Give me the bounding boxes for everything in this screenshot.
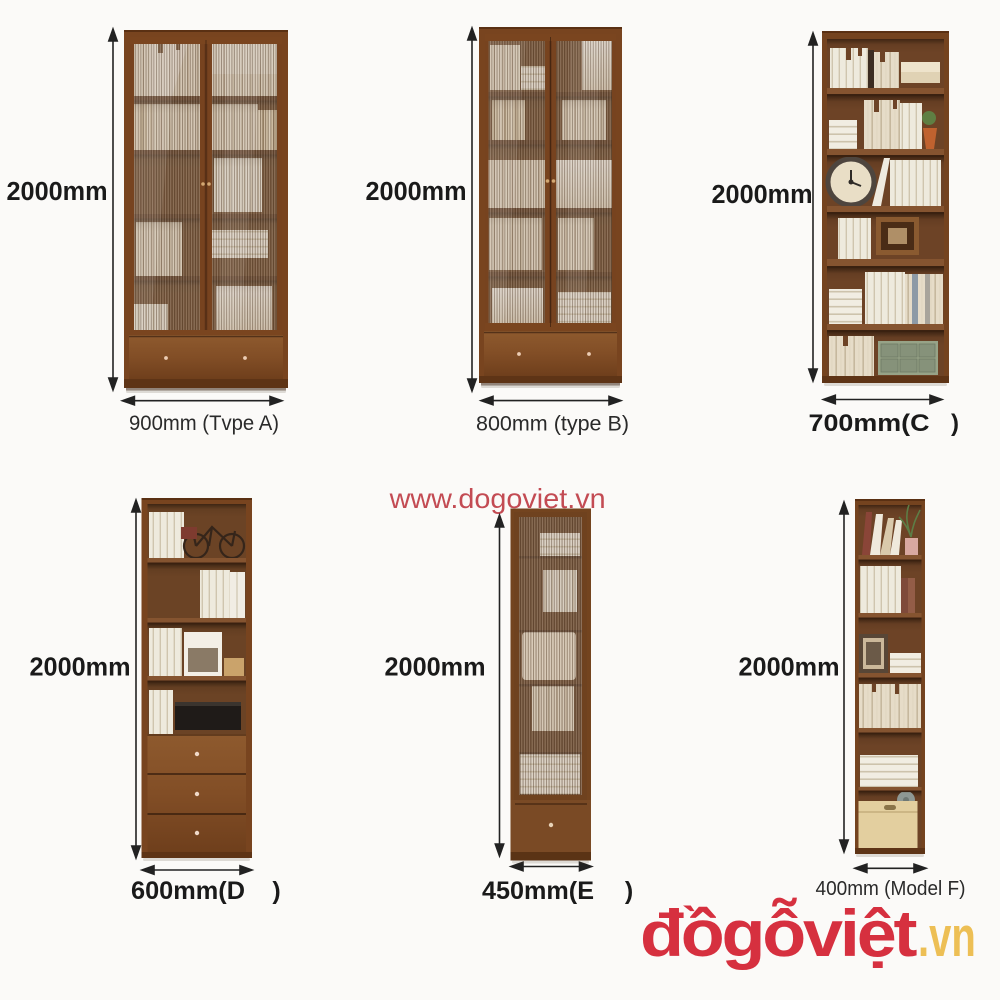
svg-text:2000mm: 2000mm — [385, 652, 486, 682]
svg-text:2000mm: 2000mm — [712, 181, 813, 209]
svg-text:): ) — [272, 877, 280, 905]
svg-text:900mm (Tvpe A): 900mm (Tvpe A) — [129, 412, 279, 435]
svg-text:2000mm: 2000mm — [30, 652, 131, 682]
svg-text:700mm(C: 700mm(C — [809, 410, 930, 437]
svg-text:450mm(E: 450mm(E — [482, 877, 594, 905]
svg-text:đồgỗviệt: đồgỗviệt — [640, 896, 917, 971]
svg-text:): ) — [625, 877, 633, 905]
svg-text:): ) — [951, 410, 959, 437]
svg-text:2000mm: 2000mm — [739, 652, 840, 682]
svg-text:2000mm: 2000mm — [366, 178, 467, 206]
svg-text:.vn: .vn — [918, 906, 976, 968]
svg-text:800mm (type B): 800mm (type B) — [476, 413, 629, 436]
svg-text:600mm(D: 600mm(D — [131, 877, 245, 905]
svg-text:2000mm: 2000mm — [7, 178, 108, 206]
svg-text:www.dogoviet.vn: www.dogoviet.vn — [389, 483, 606, 514]
